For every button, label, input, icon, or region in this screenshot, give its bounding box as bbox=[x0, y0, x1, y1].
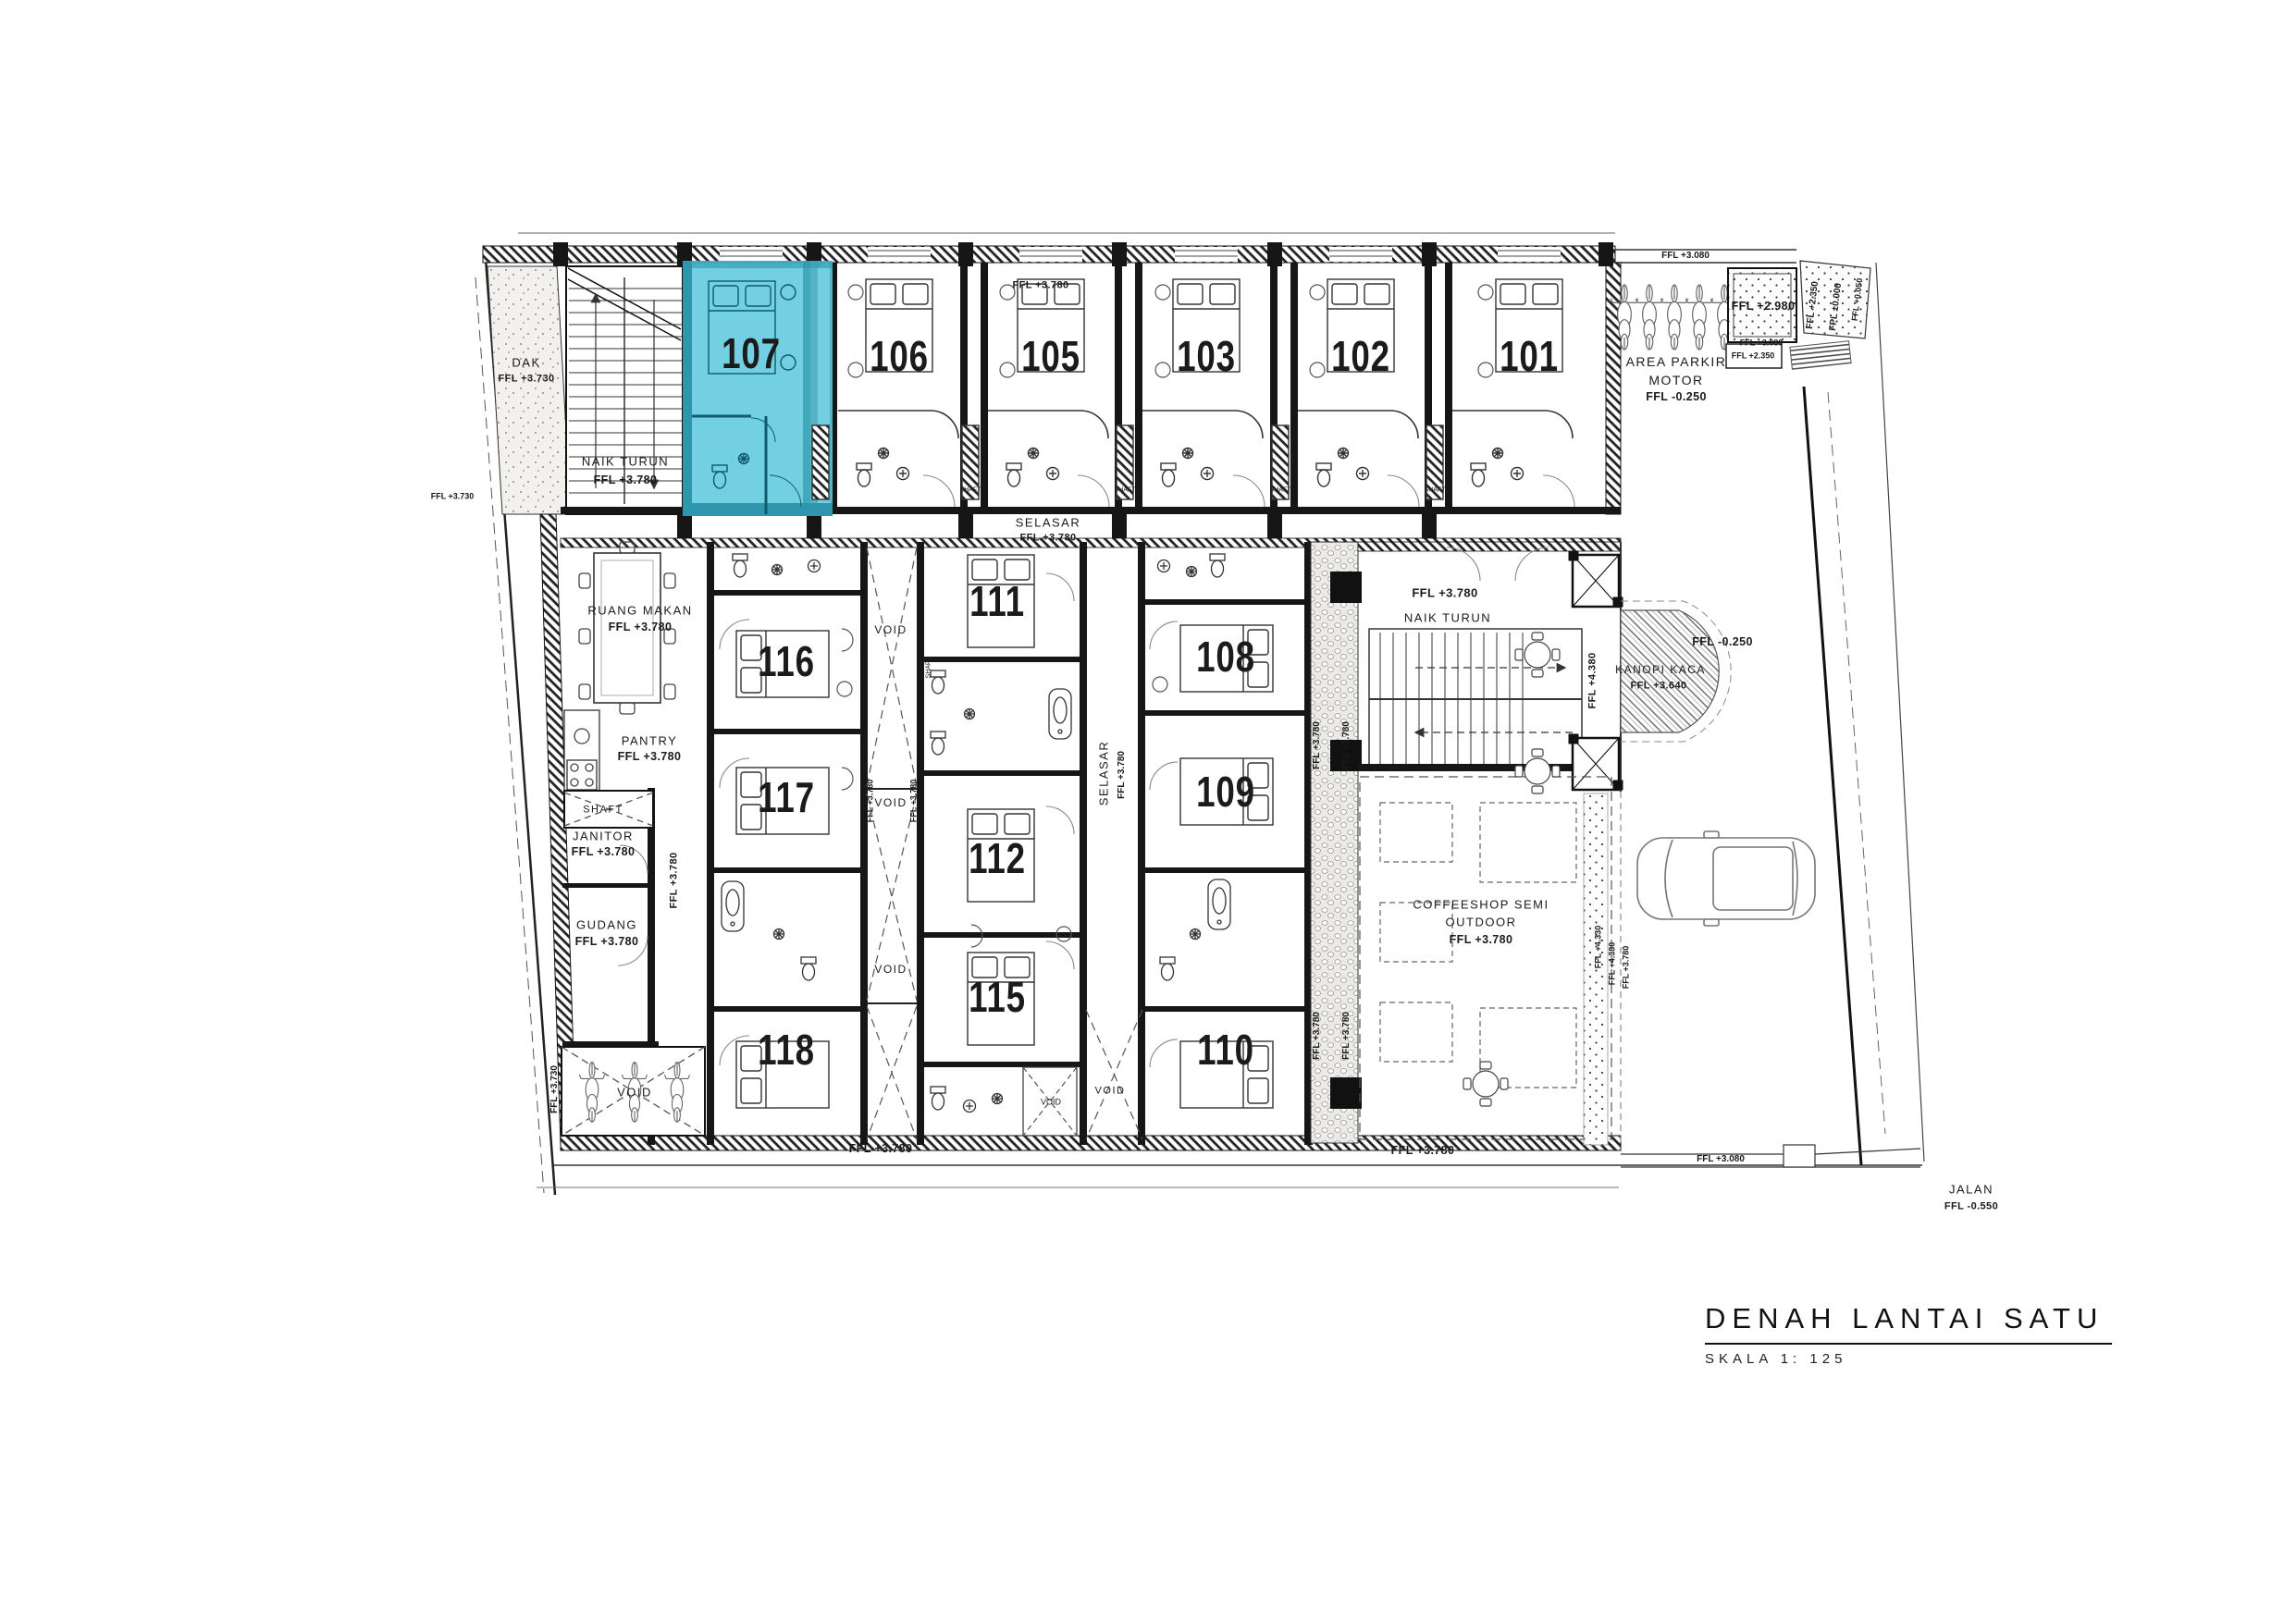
car-symbol bbox=[1637, 831, 1815, 926]
gudang-level: FFL +3.780 bbox=[575, 936, 639, 948]
floor-plan-linework bbox=[0, 0, 2296, 1623]
car-level-1: FFL +4.330 bbox=[1595, 926, 1603, 969]
drawing-title: DENAH LANTAI SATU bbox=[1705, 1302, 2112, 1345]
room-number-109: 109 bbox=[1196, 770, 1255, 813]
room-number-112: 112 bbox=[969, 837, 1026, 879]
room-number-108: 108 bbox=[1196, 635, 1255, 678]
void-label-1: VOID bbox=[874, 624, 907, 635]
shaft-tag-5: SHAFT bbox=[926, 658, 932, 679]
shaft-tag-3: SHAFT bbox=[1270, 487, 1291, 494]
coffeeshop-label-1: COFFEESHOP SEMI bbox=[1413, 899, 1549, 911]
corridor-level: FFL +3.780 bbox=[670, 853, 680, 909]
ramp-level: FFL +2.980 bbox=[1732, 301, 1796, 313]
kanopi-label: KANOPI KACA bbox=[1615, 664, 1706, 675]
stairs-right bbox=[1358, 542, 1621, 1147]
room-number-111: 111 bbox=[969, 580, 1025, 622]
ramp-low-level: FFL +2.350 bbox=[1732, 352, 1775, 361]
top-corridor-level: FFL +3.780 bbox=[1013, 281, 1069, 291]
car-area bbox=[1584, 793, 1815, 1145]
bottom-level-2: FFL +3.780 bbox=[1391, 1145, 1455, 1157]
walkway-level-1: FFL +3.780 bbox=[1313, 721, 1322, 769]
pantry-label: PANTRY bbox=[622, 735, 678, 747]
dropoff-level: FFL -0.250 bbox=[1692, 636, 1753, 648]
room-number-115: 115 bbox=[969, 976, 1026, 1018]
parking-motor bbox=[1611, 285, 1737, 350]
shaft-tag-1: SHAFT bbox=[960, 487, 981, 494]
room-number-102: 102 bbox=[1331, 335, 1390, 377]
shaft-tag-2: SHAFT bbox=[1115, 487, 1136, 494]
void-level-left: FFL +3.780 bbox=[867, 780, 875, 823]
top-bathrooms bbox=[812, 411, 1574, 507]
room-number-105: 105 bbox=[1021, 335, 1080, 377]
parkir-level: FFL -0.250 bbox=[1646, 391, 1707, 403]
drawing-scale: SKALA 1: 125 bbox=[1705, 1351, 2112, 1367]
walkway-level-2: FFL +3.780 bbox=[1342, 721, 1352, 769]
room-number-106: 106 bbox=[870, 335, 929, 377]
void-label-3: VOID bbox=[874, 964, 907, 975]
janitor-level: FFL +3.780 bbox=[572, 846, 636, 858]
kanopi-level: FFL +3.640 bbox=[1631, 682, 1687, 692]
room-number-107: 107 bbox=[722, 332, 781, 375]
top-right-level: FFL +3.080 bbox=[1661, 252, 1710, 261]
lobby-level: FFL +4.380 bbox=[1588, 653, 1599, 709]
room-number-118: 118 bbox=[758, 1028, 815, 1071]
ruang-makan-level: FFL +3.780 bbox=[609, 621, 673, 633]
dak-area bbox=[488, 266, 571, 514]
selasar-mid-level: FFL +3.780 bbox=[1117, 751, 1127, 799]
dak-label: DAK bbox=[512, 357, 540, 369]
car-level-3: FFL +3.780 bbox=[1623, 946, 1631, 990]
bottom-level-1: FFL +3.780 bbox=[849, 1143, 913, 1155]
floor-plan-sheet: 107 106 105 103 102 101 116 117 118 111 … bbox=[0, 0, 2296, 1623]
void-label-4: VOID bbox=[1041, 1099, 1061, 1107]
ramp-base-level: FFL +3.080 bbox=[1740, 339, 1784, 348]
selasar-mid-label: SELASAR bbox=[1098, 741, 1110, 805]
car-level-2: FFL +4.380 bbox=[1609, 942, 1617, 986]
void-bikes-level: FFL +3.730 bbox=[550, 1065, 560, 1113]
room-number-110: 110 bbox=[1197, 1028, 1254, 1071]
room-number-103: 103 bbox=[1177, 335, 1236, 377]
void-label-2: VOID bbox=[874, 797, 907, 808]
selasar-top-label: SELASAR bbox=[1016, 517, 1080, 529]
walkway-level-3: FFL +3.780 bbox=[1313, 1012, 1322, 1060]
void-bikes-label: VOID bbox=[617, 1087, 652, 1099]
jalan-label: JALAN bbox=[1949, 1184, 1994, 1196]
stair-left-label: NAIK TURUN bbox=[582, 456, 669, 468]
dak-edge-level: FFL +3.730 bbox=[431, 493, 475, 501]
shaft-tag-4: SHAFT bbox=[1425, 487, 1446, 494]
selasar-top-level: FFL +3.780 bbox=[1020, 534, 1077, 544]
void-label-5: VOID bbox=[1095, 1087, 1126, 1097]
room-107-highlight[interactable] bbox=[683, 261, 833, 516]
coffeeshop-label-2: OUTDOOR bbox=[1446, 916, 1517, 928]
dak-level: FFL +3.730 bbox=[499, 375, 555, 385]
walkway-level-4: FFL +3.780 bbox=[1342, 1012, 1352, 1060]
janitor-label: JANITOR bbox=[573, 830, 634, 842]
void-level-right: FFL +3.780 bbox=[910, 780, 919, 823]
ruang-makan-label: RUANG MAKAN bbox=[587, 605, 692, 617]
jalan-level: FFL -0.550 bbox=[1944, 1202, 1998, 1212]
bottom-level-3: FFL +3.080 bbox=[1697, 1155, 1745, 1164]
parkir-label-1: AREA PARKIR bbox=[1626, 355, 1727, 368]
shaft-label: SHAFT bbox=[583, 805, 623, 816]
pantry-level: FFL +3.780 bbox=[618, 751, 682, 763]
room-number-101: 101 bbox=[1500, 335, 1559, 377]
parkir-label-2: MOTOR bbox=[1648, 374, 1703, 387]
stair-right-level: FFL +3.780 bbox=[1412, 587, 1477, 599]
title-block: DENAH LANTAI SATU SKALA 1: 125 bbox=[1705, 1302, 2112, 1367]
room-number-116: 116 bbox=[758, 640, 815, 682]
stair-left-level: FFL +3.780 bbox=[594, 474, 658, 486]
room-number-117: 117 bbox=[758, 776, 815, 818]
gudang-label: GUDANG bbox=[576, 919, 637, 931]
coffeeshop-level: FFL +3.780 bbox=[1450, 934, 1513, 946]
stair-right-label: NAIK TURUN bbox=[1404, 612, 1491, 624]
